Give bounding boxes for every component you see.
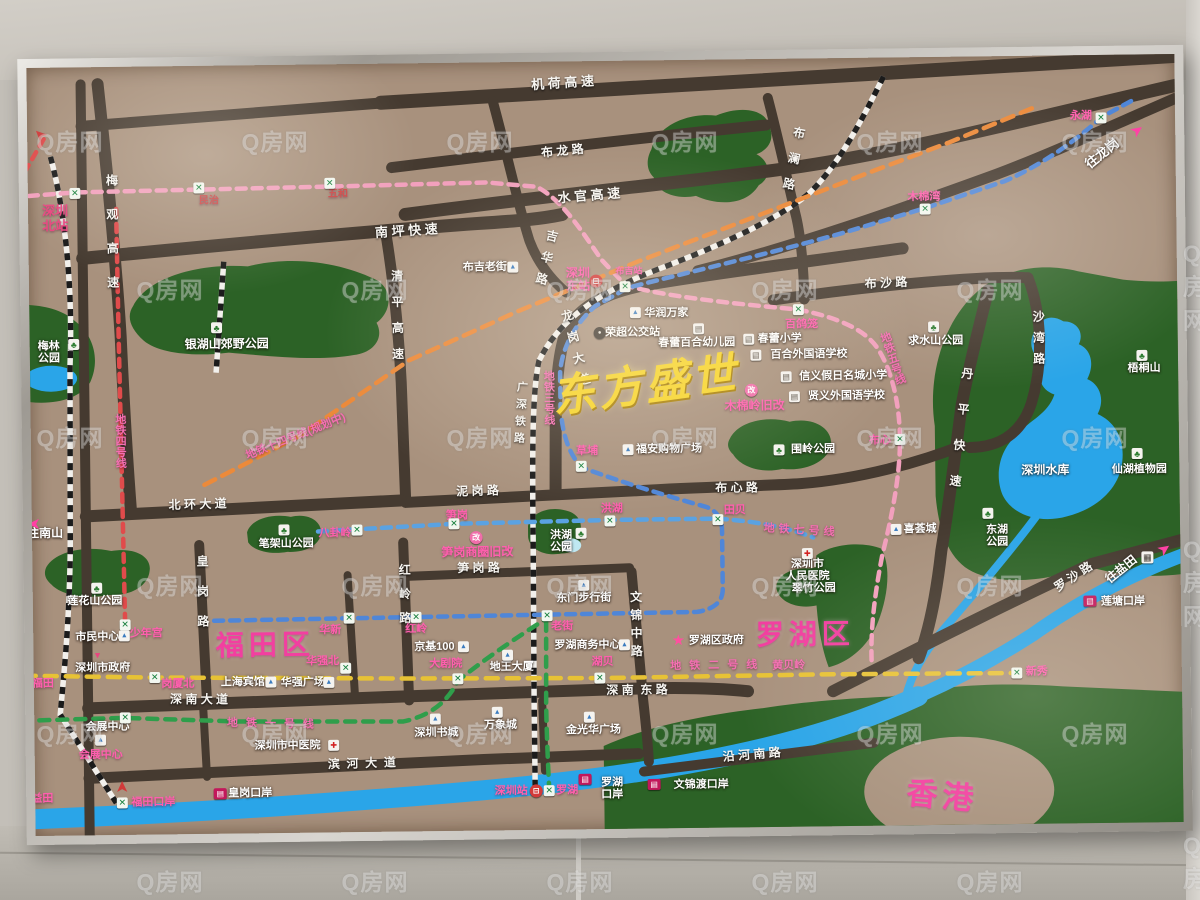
map-geometry xyxy=(26,54,1183,836)
metro-station-icon: ✕ xyxy=(26,670,33,681)
metro-station-icon: ✕ xyxy=(26,792,31,803)
board-frame: 机 荷 高 速布 龙 路水 官 高 速南 坪 快 速布 沙 路泥 岗 路布 心 … xyxy=(17,45,1193,845)
map-board-photo: 机 荷 高 速布 龙 路水 官 高 速南 坪 快 速布 沙 路泥 岗 路布 心 … xyxy=(0,0,1200,900)
wall-seam xyxy=(576,836,581,900)
map-canvas: 机 荷 高 速布 龙 路水 官 高 速南 坪 快 速布 沙 路泥 岗 路布 心 … xyxy=(26,54,1183,836)
location-map-board: 机 荷 高 速布 龙 路水 官 高 速南 坪 快 速布 沙 路泥 岗 路布 心 … xyxy=(26,54,1183,836)
